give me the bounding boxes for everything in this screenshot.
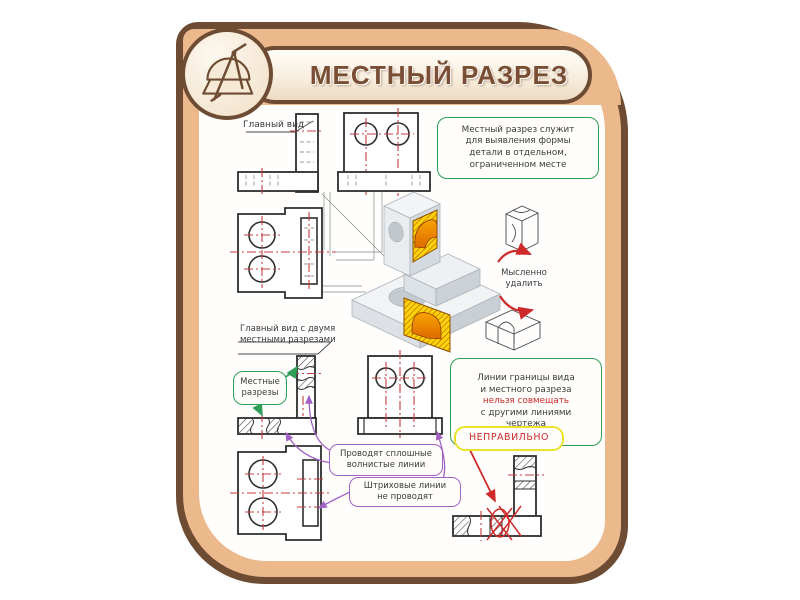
incorrect-badge: НЕПРАВИЛЬНО (454, 426, 564, 451)
callout-definition: Местный разрез служит для выявления форм… (437, 117, 599, 179)
rule-text-top: Линии границы вида и местного разреза (477, 373, 574, 396)
page-title: МЕСТНЫЙ РАЗРЕЗ (310, 60, 568, 91)
poster-stage: МЕСТНЫЙ РАЗРЕЗ (0, 0, 800, 600)
label-mentally-remove: Мысленно удалить (492, 268, 556, 290)
label-main-view-two-cuts: Главный вид с двумя местными разрезами (240, 324, 350, 346)
logo-badge (181, 28, 273, 120)
callout-no-dashed-lines: Штриховые линии не проводят (349, 477, 461, 507)
drafting-tools-icon (192, 39, 262, 109)
callout-local-cuts: Местные разрезы (233, 371, 287, 405)
callout-wavy-lines: Проводят сплошные волнистые линии (329, 444, 443, 476)
rule-text-forbidden: нельзя совмещать (483, 396, 569, 408)
title-banner: МЕСТНЫЙ РАЗРЕЗ (246, 46, 592, 104)
label-main-view: Главный вид (243, 120, 304, 132)
